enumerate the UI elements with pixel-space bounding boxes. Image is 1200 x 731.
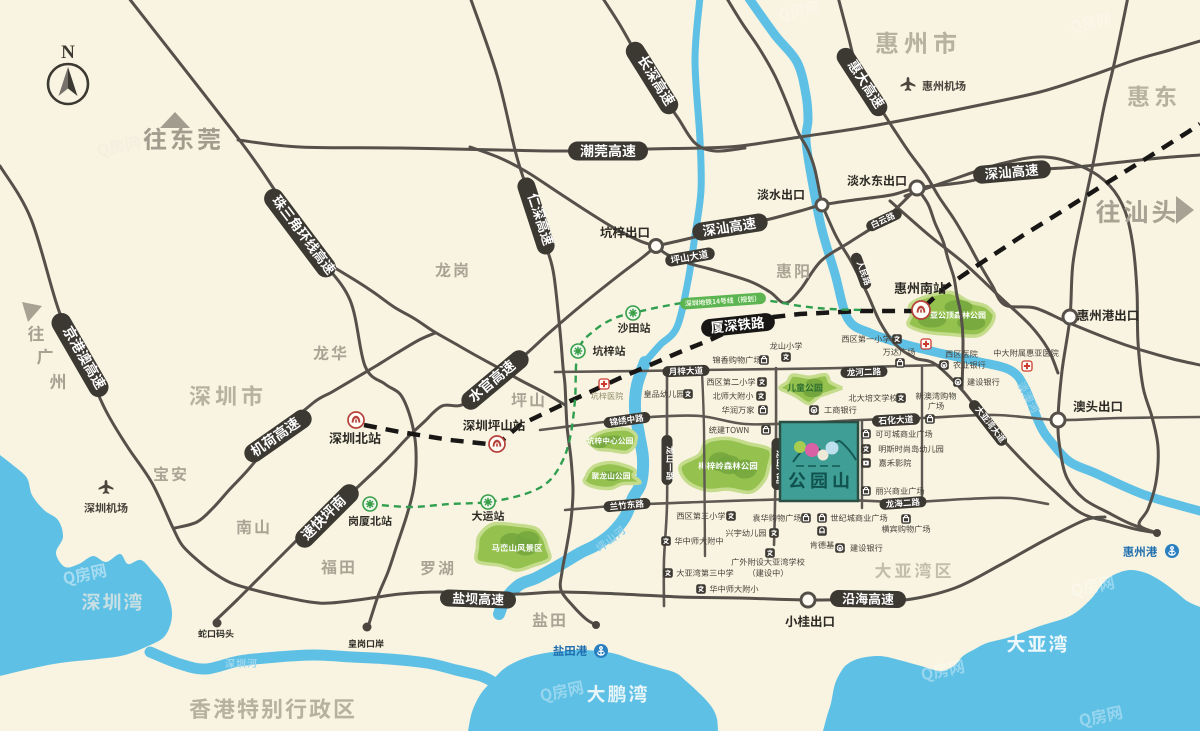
svg-text:N: N [61, 42, 75, 63]
